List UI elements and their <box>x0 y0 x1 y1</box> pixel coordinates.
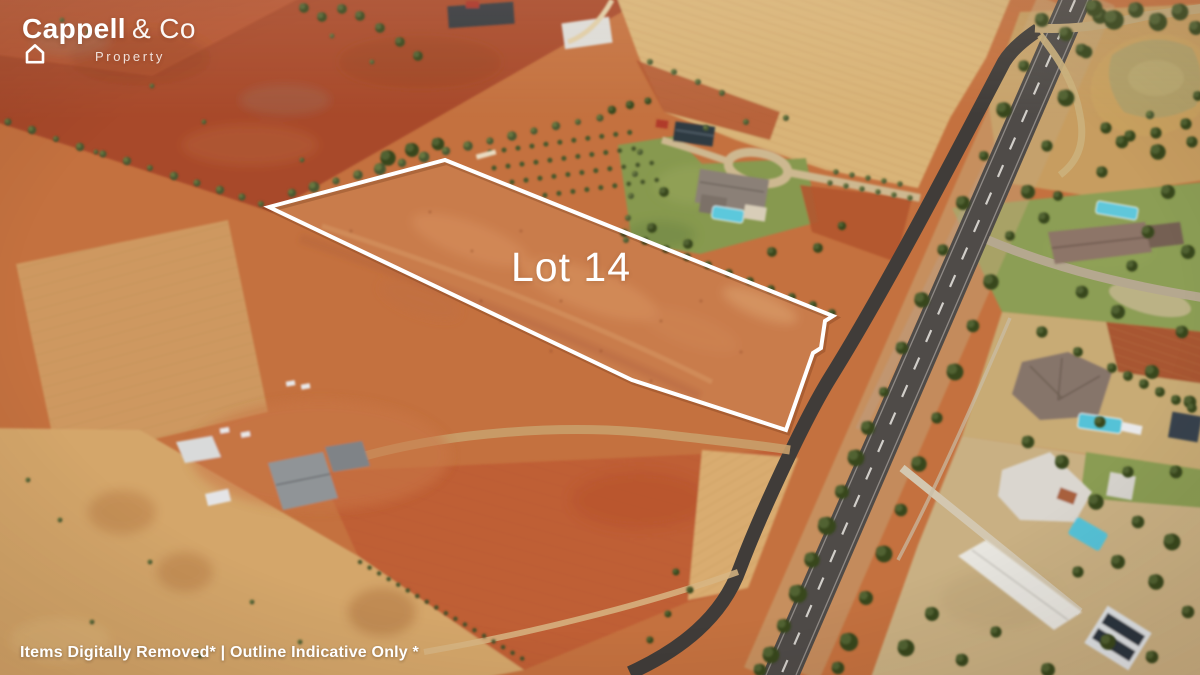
aerial-photo: Cappell & Co Property Lot 14 Items Digit… <box>0 0 1200 675</box>
house-outline-icon <box>24 43 46 64</box>
aerial-scene <box>0 0 1200 675</box>
brand-logo: Cappell & Co Property <box>22 12 196 64</box>
wordmark-suffix: & Co <box>132 12 196 46</box>
brand-subtitle: Property <box>95 49 196 64</box>
disclaimer-text: Items Digitally Removed* | Outline Indic… <box>20 644 419 662</box>
lot-label: Lot 14 <box>511 244 631 291</box>
wordmark-bold: Cappell <box>22 12 126 46</box>
brand-wordmark: Cappell & Co <box>22 12 196 46</box>
vignette <box>0 0 1200 675</box>
